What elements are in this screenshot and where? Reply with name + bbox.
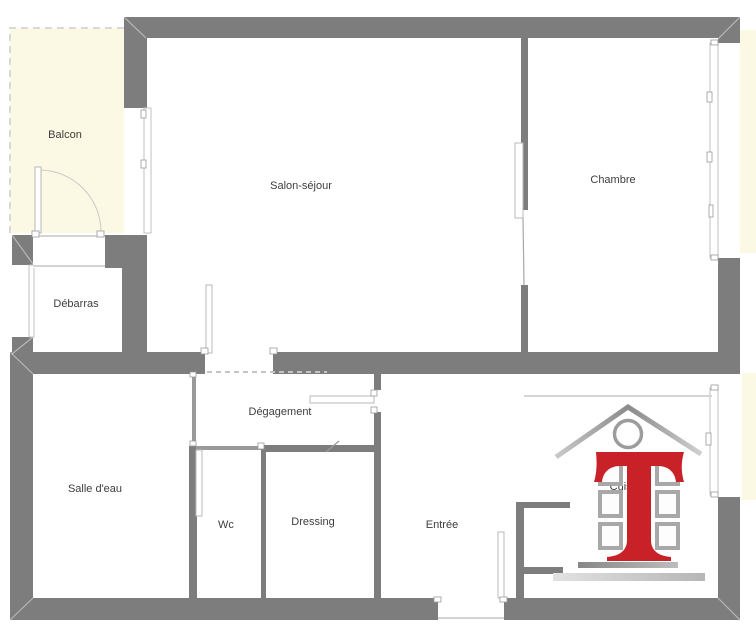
logo-circle-icon [615,421,642,448]
salon-balcony-window [144,108,151,233]
salon-degagement-door-leaf [206,285,212,353]
room-label-balcon: Balcon [48,129,82,141]
room-label-debarras: Débarras [53,298,99,310]
balcony-door-leaf [35,167,41,233]
room-label-dressing: Dressing [291,516,334,528]
chambre-door-leaf [515,143,523,218]
wc-door-leaf [196,450,202,516]
room-label-degagement: Dégagement [249,406,312,418]
floor-plan: Balcon Salon-séjour Chambre Débarras Dég… [0,0,756,627]
chambre-door-open-line [523,218,524,285]
floor-plan-page: Balcon Salon-séjour Chambre Débarras Dég… [0,0,756,627]
room-label-salle-deau: Salle d'eau [68,483,122,495]
debarras-window [29,265,34,337]
room-label-salon: Salon-séjour [270,180,332,192]
room-label-chambre: Chambre [590,174,635,186]
room-label-wc: Wc [218,519,234,531]
chambre-window [710,43,718,258]
room-label-entree: Entrée [426,519,458,531]
entrance-door-leaf [498,532,504,598]
entree-degagement-door-leaf [310,396,374,403]
logo-base-bar-dark [578,562,678,568]
logo-base-bar-light [553,573,705,581]
agency-logo [553,407,705,581]
balcony-opening [33,235,105,268]
